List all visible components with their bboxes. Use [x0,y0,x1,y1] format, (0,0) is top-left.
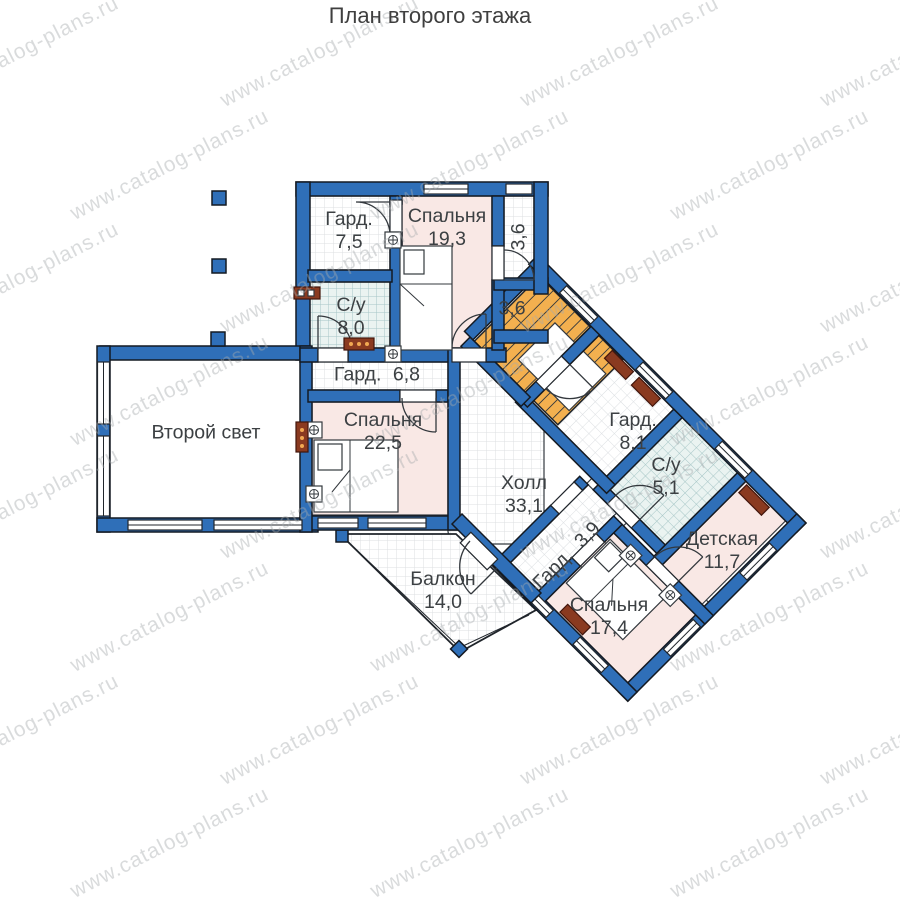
room-label-wardrobe-7-5: Гард. 7,5 [325,208,373,254]
room-label-bathroom-5-1: С/у 5,1 [651,454,680,500]
room-label-hall-33-1: Холл 33,1 [501,472,547,518]
room-labels: Гард. 7,5 Спальня 19,3 3,6 С/у 8,0 3,6 Г… [0,0,900,900]
room-label-balcony-14-0: Балкон 14,0 [410,568,475,614]
room-label-second-light: Второй свет [152,422,261,445]
room-label-bedroom-22-5: Спальня 22,5 [344,409,422,455]
room-label-kids-11-7: Детская 11,7 [686,528,758,574]
room-label-strip-3-6: 3,6 [508,223,531,250]
room-label-closet-3-6: 3,6 [498,298,525,321]
floor-plan-page: { "title": "План второго этажа", "waterm… [0,0,900,900]
room-label-wardrobe-8-1: Гард. 8,1 [609,409,657,455]
room-label-bathroom-8-0: С/у 8,0 [336,294,365,340]
room-label-wardrobe-6-8: Гард. 6,8 [331,364,423,387]
room-label-bedroom-17-4: Спальня 17,4 [570,594,648,640]
room-label-wardrobe-3-9: Гард. 3,9 [526,515,607,596]
room-label-bedroom-19-3: Спальня 19,3 [408,205,486,251]
